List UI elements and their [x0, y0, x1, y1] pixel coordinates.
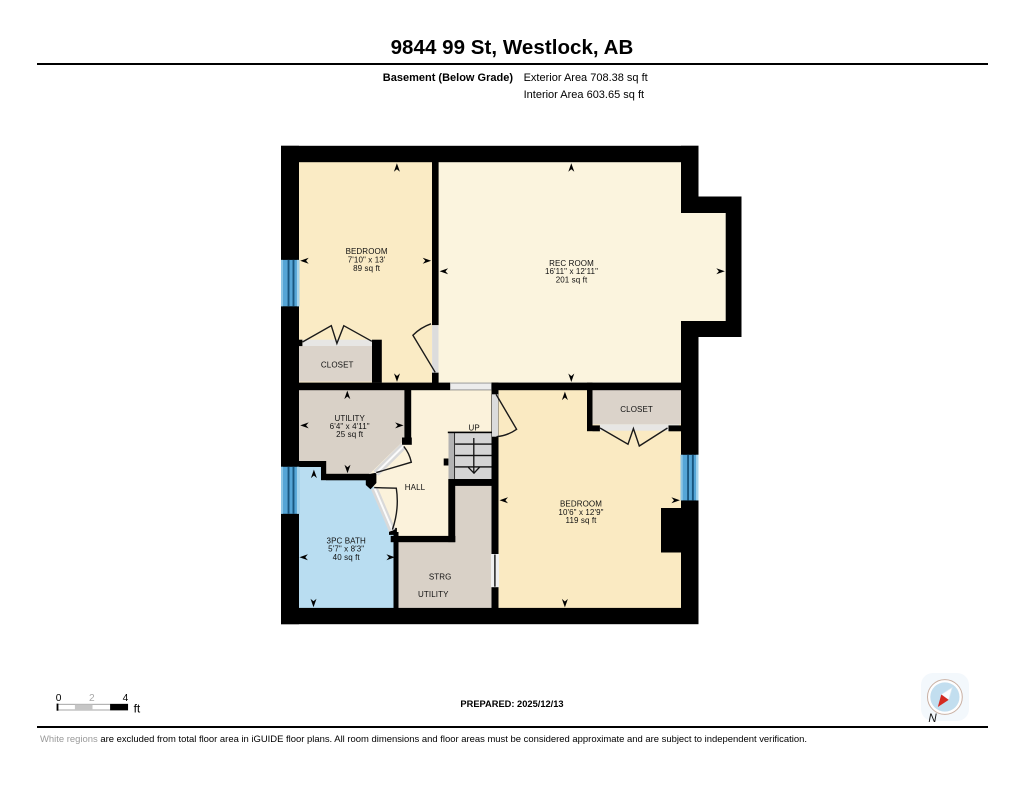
svg-text:N: N — [928, 713, 937, 725]
svg-text:CLOSET: CLOSET — [321, 360, 354, 369]
svg-text:UP: UP — [469, 423, 480, 432]
svg-text:HALL: HALL — [405, 483, 426, 492]
svg-text:CLOSET: CLOSET — [620, 405, 653, 414]
svg-text:UTILITY: UTILITY — [418, 590, 449, 599]
svg-text:STRG: STRG — [429, 573, 452, 582]
